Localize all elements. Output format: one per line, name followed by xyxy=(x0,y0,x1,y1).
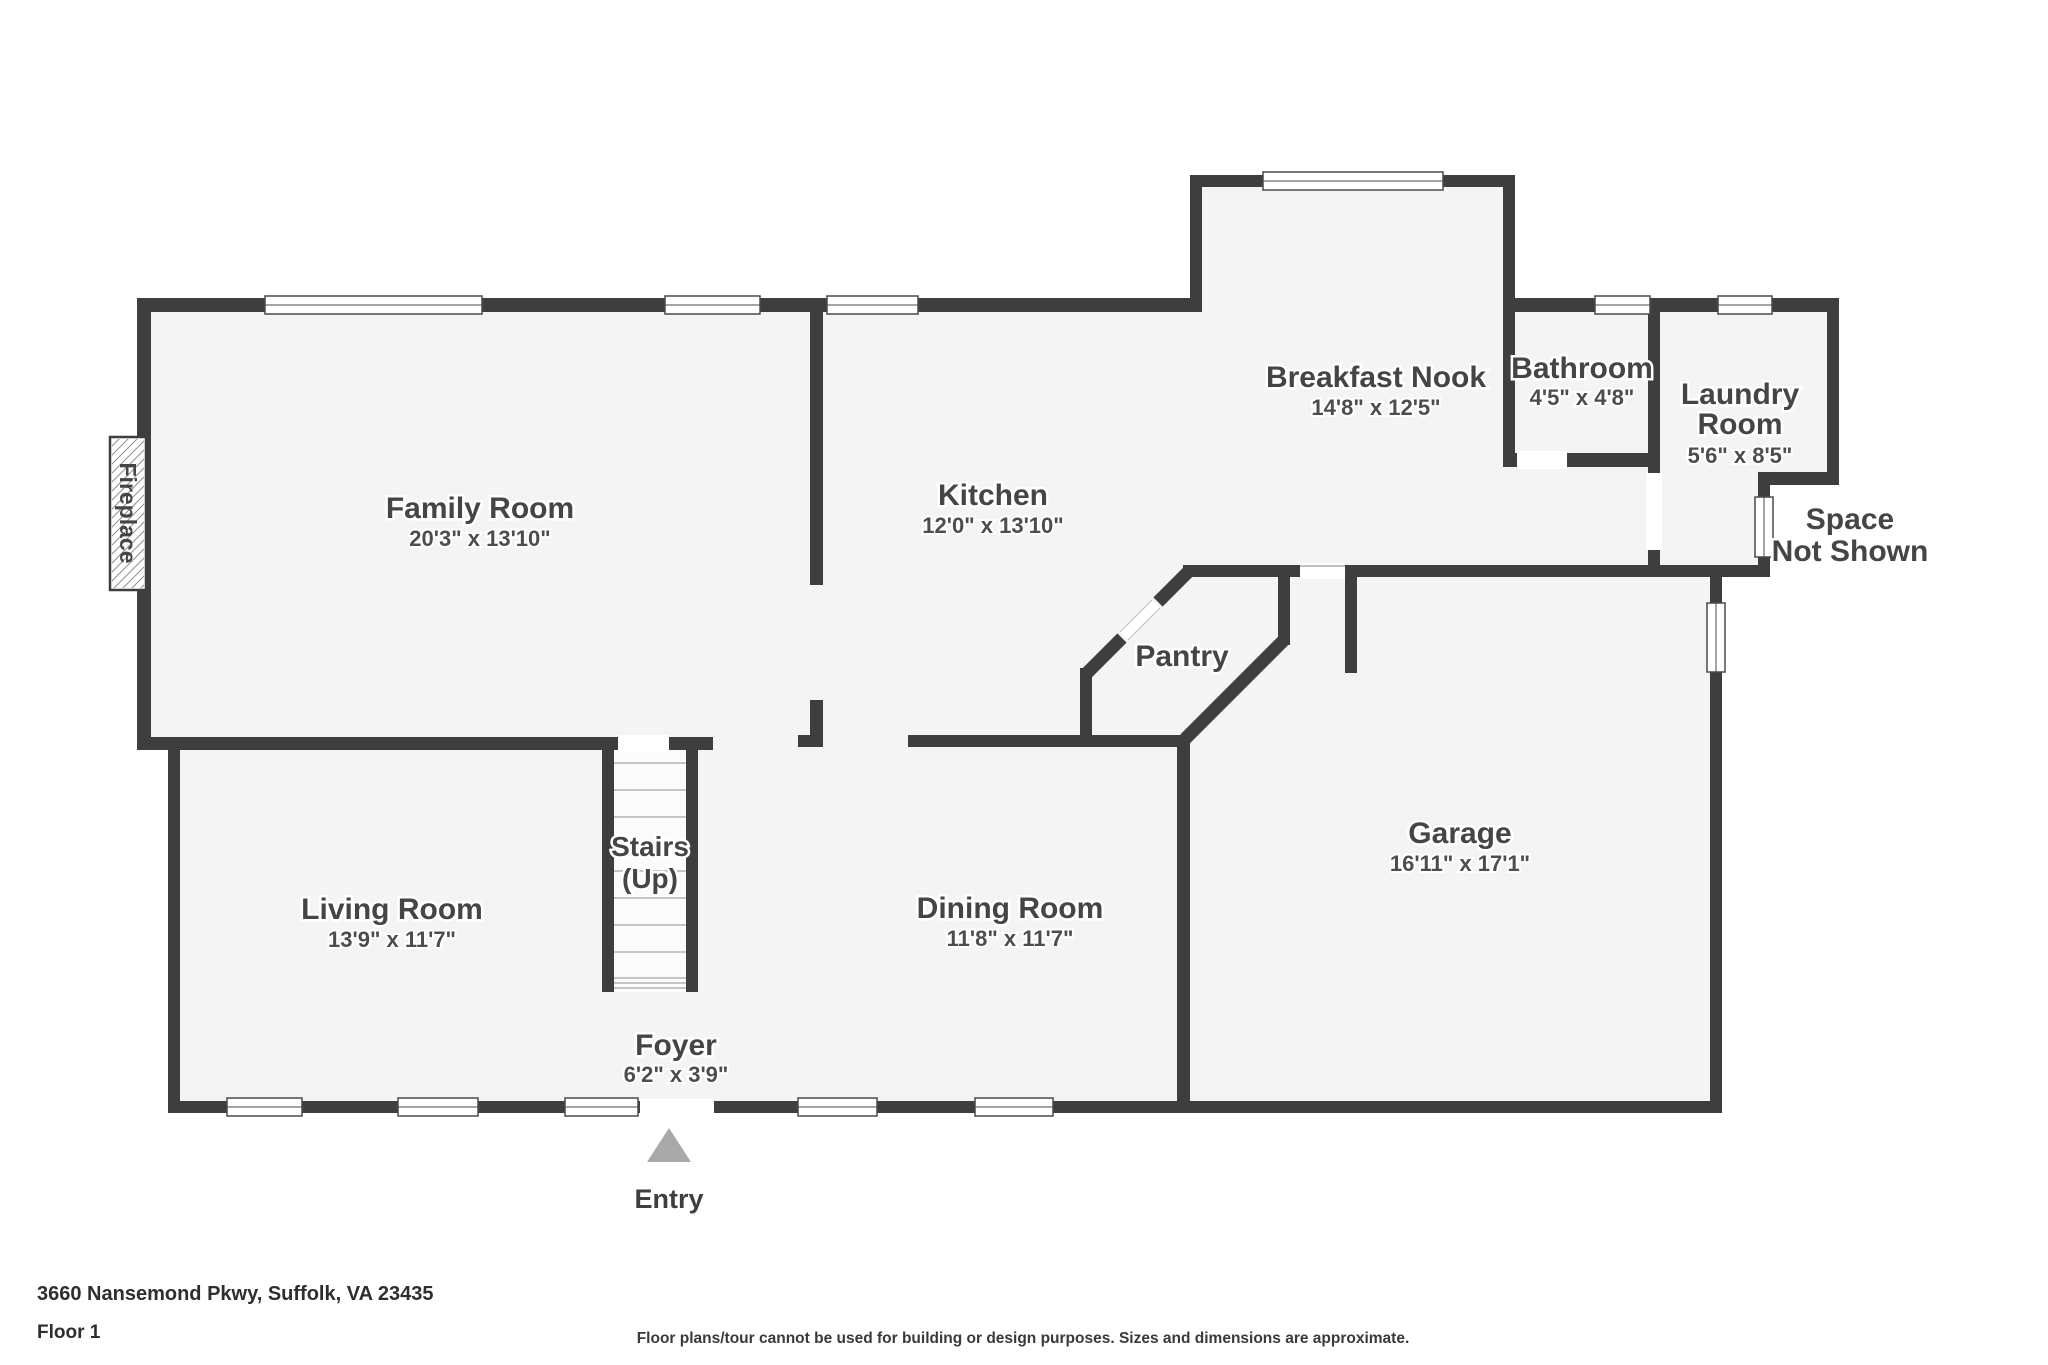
entry-arrow-icon xyxy=(647,1128,691,1162)
pantry-label: Pantry xyxy=(1135,640,1229,673)
stairs-label: Stairs xyxy=(611,831,689,862)
garage-dims: 16'11" x 17'1" xyxy=(1390,851,1530,876)
entry-label: Entry xyxy=(634,1184,703,1214)
footer: 3660 Nansemond Pkwy, Suffolk, VA 23435 F… xyxy=(37,1283,1409,1347)
space-not-shown-label-1: Space xyxy=(1806,503,1894,536)
laundry-door-opening xyxy=(1646,473,1662,550)
bathroom-label: Bathroom xyxy=(1511,352,1653,385)
space-not-shown-label-2: Not Shown xyxy=(1772,535,1929,568)
disclaimer-text: Floor plans/tour cannot be used for buil… xyxy=(637,1330,1410,1347)
living-room-label: Living Room xyxy=(301,893,483,926)
stairwell-opening xyxy=(618,735,669,752)
breakfast-nook-label: Breakfast Nook xyxy=(1266,361,1486,394)
kitchen-dims: 12'0" x 13'10" xyxy=(922,513,1063,538)
foyer-dims: 6'2" x 3'9" xyxy=(624,1062,729,1087)
garage-label: Garage xyxy=(1408,817,1511,850)
address-text: 3660 Nansemond Pkwy, Suffolk, VA 23435 xyxy=(37,1283,433,1305)
floor-number: Floor 1 xyxy=(37,1322,101,1343)
floor-areas xyxy=(144,185,1833,1113)
laundry-room-dims: 5'6" x 8'5" xyxy=(1688,443,1793,468)
living-room-dims: 13'9" x 11'7" xyxy=(328,927,456,952)
laundry-room-label-1: Laundry xyxy=(1681,378,1800,411)
breakfast-nook-dims: 14'8" x 12'5" xyxy=(1311,395,1440,420)
entry-door-opening xyxy=(640,1099,714,1115)
foyer-label: Foyer xyxy=(635,1029,717,1062)
kitchen-label: Kitchen xyxy=(938,479,1048,512)
family-room-label: Family Room xyxy=(386,492,574,525)
floor-plan-svg: Fireplace Family Room 20'3" x 13'10" Kit… xyxy=(0,0,2048,1365)
stairs-up-label: (Up) xyxy=(622,863,678,894)
bathroom-dims: 4'5" x 4'8" xyxy=(1530,385,1635,410)
laundry-room-label-2: Room xyxy=(1698,408,1783,441)
dining-room-dims: 11'8" x 11'7" xyxy=(947,926,1074,951)
floor-plan-page: Fireplace Family Room 20'3" x 13'10" Kit… xyxy=(0,0,2048,1365)
dining-room-label: Dining Room xyxy=(917,892,1104,925)
bathroom-door-opening xyxy=(1517,451,1567,469)
fireplace-label: Fireplace xyxy=(115,463,141,564)
fireplace: Fireplace xyxy=(110,437,146,590)
family-room-dims: 20'3" x 13'10" xyxy=(409,526,550,551)
